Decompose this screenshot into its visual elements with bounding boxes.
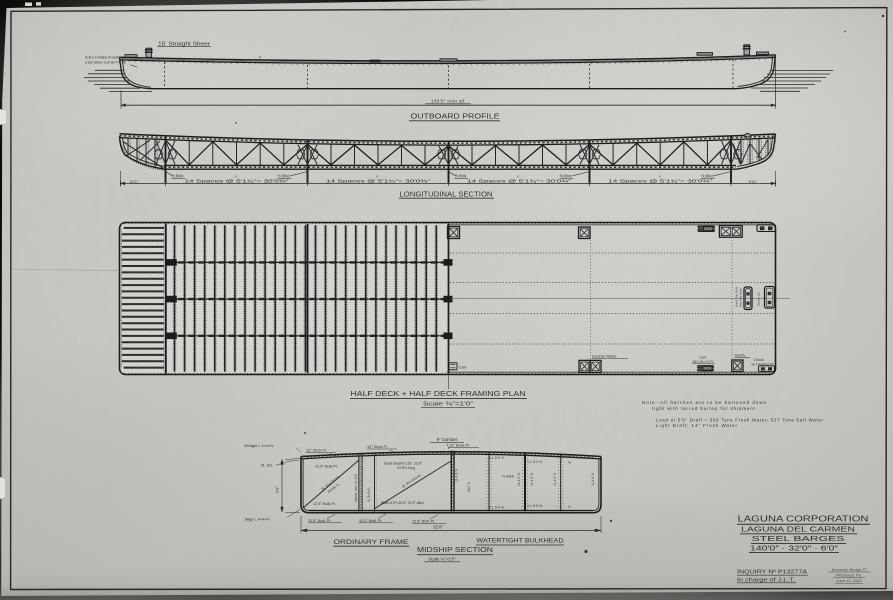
svg-text:Chock: Chock (754, 358, 764, 362)
svg-text:Pittsburgh, Pa.: Pittsburgh, Pa. (836, 573, 862, 578)
svg-text:A.B.Co Rake Knuckle ℓ: A.B.Co Rake Knuckle ℓ (85, 56, 125, 60)
svg-text:Carl.: Carl. (699, 355, 707, 359)
svg-text:Scale ¾″=1'0″: Scale ¾″=1'0″ (428, 557, 456, 562)
svg-text:Scale ⅜″=1′0″: Scale ⅜″=1′0″ (423, 402, 473, 408)
svg-text:½ Bhd: ½ Bhd (560, 173, 572, 178)
svg-text:12.5° Bott. Pl.: 12.5° Bott. Pl. (412, 520, 435, 524)
svg-text:14 Spaces @ 5′1¾″= 30′0⅜″: 14 Spaces @ 5′1¾″= 30′0⅜″ (608, 179, 713, 184)
svg-text:9″ Camber: 9″ Camber (437, 437, 458, 442)
svg-text:Stringer L.4×4×⅜: Stringer L.4×4×⅜ (244, 444, 274, 448)
svg-text:Light Draft: 14″ Fresh Water: Light Draft: 14″ Fresh Water (656, 423, 738, 428)
svg-text:Carl: Carl (459, 365, 466, 370)
svg-text:14 Spaces @ 5′1¾″= 30′0⅜″: 14 Spaces @ 5′1¾″= 30′0⅜″ (326, 179, 431, 184)
svg-text:American Bridge Cº: American Bridge Cº (831, 567, 867, 572)
svg-text:13° Deck Pl.: 13° Deck Pl. (306, 448, 327, 452)
svg-text:x: x (235, 175, 237, 179)
svg-text:WATERTIGHT BULKHEAD: WATERTIGHT BULKHEAD (477, 538, 565, 545)
svg-text:Double Hatch.: Double Hatch. (592, 353, 617, 358)
svg-text:½ Bhd: ½ Bhd (172, 173, 184, 178)
svg-text:Chock Sp: Chock Sp (757, 292, 761, 306)
svg-text:⅜ Web: ⅜ Web (502, 475, 514, 479)
svg-text:Hatch.: Hatch. (735, 353, 747, 358)
svg-text:Note:-All hatches are to be ba: Note:-All hatches are to be battened dow… (642, 400, 767, 405)
svg-text:½ Bhd: ½ Bhd (455, 173, 467, 178)
svg-text:13° Deck Pl.: 13° Deck Pl. (449, 443, 470, 447)
svg-text:M. SS.: M. SS. (261, 463, 273, 468)
svg-text:Cast Steel Corner Plᵗ 36: Cast Steel Corner Plᵗ 36 (85, 61, 126, 65)
svg-text:Bilge L.4×4×⅜: Bilge L.4×4×⅜ (245, 517, 270, 521)
svg-text:1 L 5·3·⅜: 1 L 5·3·⅜ (527, 460, 542, 464)
svg-text:1L 4·3·⅜: 1L 4·3·⅜ (591, 473, 595, 486)
svg-text:9'11″: 9'11″ (749, 179, 758, 184)
svg-text:Deck Beams 15ℂ 33.9°: Deck Beams 15ℂ 33.9° (384, 462, 423, 466)
svg-text:ORDINARY FRAME: ORDINARY FRAME (334, 539, 409, 546)
svg-text:LAGUNA DEL CARMEN: LAGUNA DEL CARMEN (741, 527, 855, 534)
svg-text:1L 4·3·⅜: 1L 4·3·⅜ (517, 473, 521, 486)
svg-text:21'9⅞ long: 21'9⅞ long (397, 466, 415, 470)
svg-text:Load at 5′6″ Draft = 509 Tons: Load at 5′6″ Draft = 509 Tons Fresh Wate… (656, 417, 824, 422)
svg-text:x: x (517, 175, 519, 179)
svg-text:1L 4·3·⅜: 1L 4·3·⅜ (530, 473, 534, 486)
svg-text:OUTBOARD PROFILE: OUTBOARD PROFILE (411, 111, 500, 120)
svg-text:tight with tarred burlap for s: tight with tarred burlap for shipment (652, 406, 756, 411)
svg-text:12.5° Bott. Pl.: 12.5° Bott. Pl. (359, 519, 382, 523)
svg-text:½ Bhd: ½ Bhd (278, 173, 290, 178)
svg-text:Interm. Vert. 2L 3×3: Interm. Vert. 2L 3×3 (354, 474, 358, 502)
svg-text:⅜: ⅜ (568, 505, 571, 509)
svg-text:⅜: ⅜ (568, 461, 571, 465)
svg-text:12.5° Bulk Pl.: 12.5° Bulk Pl. (313, 502, 336, 506)
svg-text:1L 3×3×⅜: 1L 3×3×⅜ (367, 487, 371, 502)
svg-text:32'0″: 32'0″ (433, 524, 443, 529)
svg-text:1L 4·3·⅜: 1L 4·3·⅜ (553, 473, 557, 486)
svg-text:1 L 5·3·⅜: 1 L 5·3·⅜ (489, 456, 504, 460)
svg-text:LONGITUDINAL SECTION: LONGITUDINAL SECTION (400, 189, 493, 198)
svg-text:x: x (659, 175, 661, 179)
svg-text:140'0″ over all: 140'0″ over all (431, 99, 465, 104)
svg-text:1 L 5·3·⅜: 1 L 5·3·⅜ (489, 505, 504, 509)
svg-text:June 12, 1920: June 12, 1920 (836, 578, 862, 583)
svg-text:13° Deck Pl.: 13° Deck Pl. (367, 445, 388, 449)
svg-text:12.5° Bulk Pl.: 12.5° Bulk Pl. (315, 464, 338, 468)
svg-text:x: x (376, 175, 378, 179)
svg-text:5'6″: 5'6″ (275, 486, 280, 493)
svg-text:STEEL BARGES: STEEL BARGES (752, 536, 846, 543)
svg-text:Two Bitt Spec: Two Bitt Spec (738, 288, 742, 307)
svg-text:Plate 6'0″×10.5° 21'9″ alike: Plate 6'0″×10.5° 21'9″ alike (381, 501, 424, 505)
svg-text:HALF DECK + HALF DECK FRAMING: HALF DECK + HALF DECK FRAMING PLAN (351, 389, 526, 398)
svg-text:140′0″ · 32′0″ · 6′0″: 140′0″ · 32′0″ · 6′0″ (750, 545, 839, 552)
svg-text:12.5° Bott. Pl.: 12.5° Bott. Pl. (308, 519, 331, 523)
svg-text:14 Spaces @ 5′1¾″= 30′0⅜″: 14 Spaces @ 5′1¾″= 30′0⅜″ (467, 179, 572, 184)
svg-text:21'1″: 21'1″ (130, 179, 139, 184)
svg-text:INQUIRY Nº P13277A: INQUIRY Nº P13277A (737, 570, 808, 576)
svg-text:14 Spaces @ 5′1¾″= 30′0⅜″: 14 Spaces @ 5′1¾″= 30′0⅜″ (185, 179, 290, 184)
svg-text:26'×10×⅞ Pl.: 26'×10×⅞ Pl. (692, 360, 713, 364)
svg-text:MIDSHIP SECTION: MIDSHIP SECTION (417, 547, 493, 554)
svg-text:1L 4·3·⅜: 1L 4·3·⅜ (455, 469, 459, 482)
svg-text:16.2·⅜: 16.2·⅜ (467, 482, 471, 492)
svg-text:1 L 5·3·⅜: 1 L 5·3·⅜ (527, 504, 542, 508)
svg-text:LAGUNA CORPORATION: LAGUNA CORPORATION (738, 514, 869, 524)
svg-text:½ Bhd: ½ Bhd (701, 173, 713, 178)
